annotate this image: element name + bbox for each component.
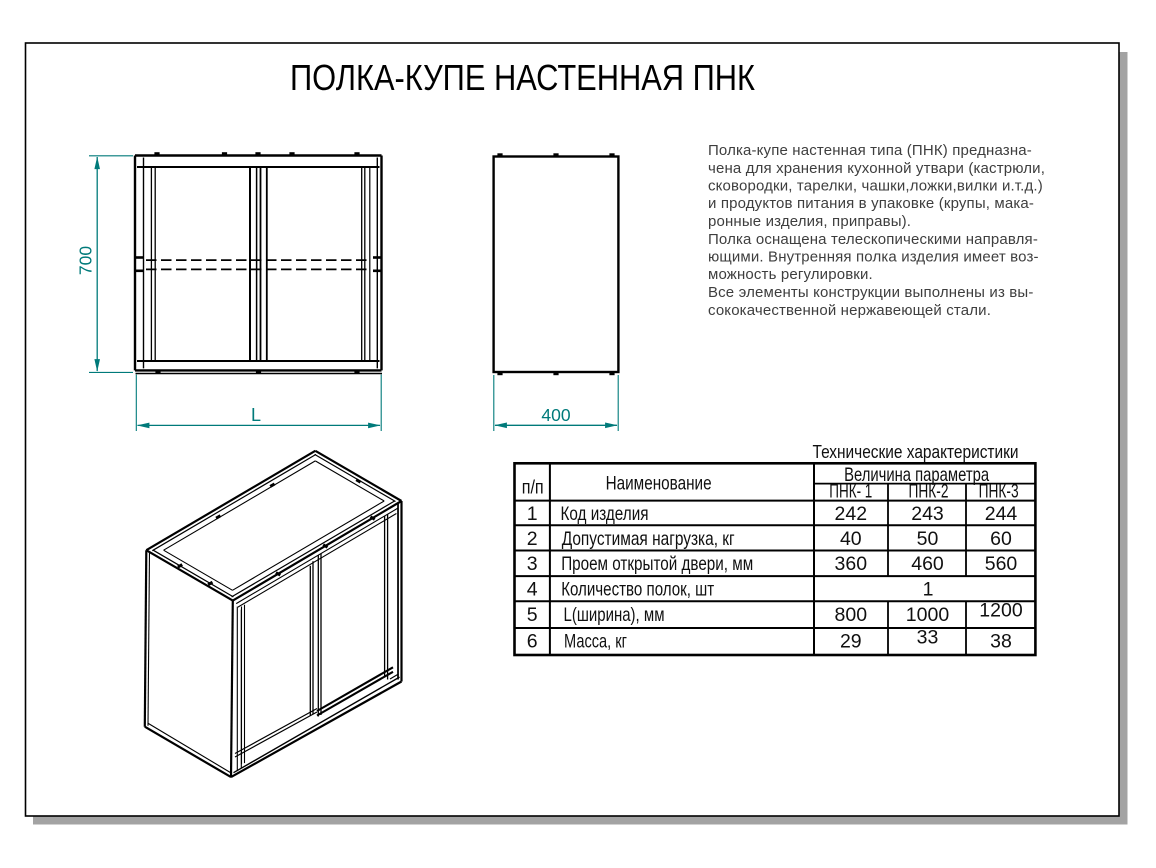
svg-text:чена для хранения кухонной утв: чена для хранения кухонной утвари (кастр… bbox=[708, 160, 1045, 177]
svg-text:4: 4 bbox=[527, 579, 538, 601]
svg-text:Допустимая нагрузка, кг: Допустимая нагрузка, кг bbox=[562, 528, 735, 550]
svg-text:60: 60 bbox=[990, 528, 1012, 550]
svg-text:и продуктов питания в упаковке: и продуктов питания в упаковке (крупы, м… bbox=[708, 195, 1034, 212]
svg-text:700: 700 bbox=[75, 246, 95, 275]
svg-text:Полка-купе настенная типа (ПНК: Полка-купе настенная типа (ПНК) предназн… bbox=[708, 142, 1032, 159]
svg-text:Код изделия: Код изделия bbox=[561, 503, 649, 525]
svg-text:3: 3 bbox=[527, 553, 538, 575]
svg-text:сковородки, тарелки, чашки,лож: сковородки, тарелки, чашки,ложки,вилки и… bbox=[708, 178, 1043, 195]
svg-text:6: 6 bbox=[527, 631, 538, 653]
svg-text:1200: 1200 bbox=[979, 600, 1023, 622]
svg-text:ПОЛКА-КУПЕ НАСТЕННАЯ ПНК: ПОЛКА-КУПЕ НАСТЕННАЯ ПНК bbox=[290, 57, 756, 98]
svg-text:можность регулировки.: можность регулировки. bbox=[708, 266, 873, 283]
svg-text:1000: 1000 bbox=[906, 604, 950, 626]
svg-text:п/п: п/п bbox=[522, 477, 544, 499]
svg-text:1: 1 bbox=[527, 503, 538, 525]
svg-text:400: 400 bbox=[541, 405, 570, 425]
svg-text:Проем открытой двери, мм: Проем открытой двери, мм bbox=[561, 553, 753, 575]
svg-text:Наименование: Наименование bbox=[606, 473, 712, 495]
svg-text:ПНК- 1: ПНК- 1 bbox=[829, 481, 872, 503]
svg-text:ПНК-2: ПНК-2 bbox=[909, 481, 949, 503]
svg-text:40: 40 bbox=[840, 528, 862, 550]
svg-text:Количество полок, шт: Количество полок, шт bbox=[561, 579, 714, 601]
svg-text:ющими. Внутренняя полка издели: ющими. Внутренняя полка изделия имеет во… bbox=[708, 249, 1039, 266]
svg-text:L: L bbox=[251, 405, 261, 425]
svg-text:сококачественной нержавеющей с: сококачественной нержавеющей стали. bbox=[708, 302, 991, 319]
svg-text:2: 2 bbox=[527, 528, 538, 550]
svg-text:Масса, кг: Масса, кг bbox=[564, 631, 627, 653]
svg-text:800: 800 bbox=[835, 604, 868, 626]
svg-text:33: 33 bbox=[917, 627, 939, 649]
svg-text:L(ширина), мм: L(ширина), мм bbox=[564, 604, 665, 626]
svg-text:Все элементы конструкции выпол: Все элементы конструкции выполнены из вы… bbox=[708, 284, 1034, 301]
svg-text:243: 243 bbox=[911, 503, 944, 525]
svg-text:360: 360 bbox=[835, 553, 868, 575]
svg-text:ПНК-3: ПНК-3 bbox=[979, 481, 1019, 503]
svg-text:Полка оснащена телескопическим: Полка оснащена телескопическими направля… bbox=[708, 231, 1038, 248]
svg-text:460: 460 bbox=[911, 553, 944, 575]
svg-text:5: 5 bbox=[527, 604, 538, 626]
svg-text:560: 560 bbox=[985, 553, 1018, 575]
svg-text:244: 244 bbox=[985, 503, 1018, 525]
svg-text:29: 29 bbox=[840, 631, 862, 653]
svg-text:242: 242 bbox=[835, 503, 868, 525]
svg-text:50: 50 bbox=[917, 528, 939, 550]
svg-text:ронные изделия, приправы).: ронные изделия, приправы). bbox=[708, 213, 911, 230]
svg-text:Технические характеристики: Технические характеристики bbox=[813, 441, 1019, 462]
svg-text:1: 1 bbox=[923, 579, 934, 601]
svg-text:38: 38 bbox=[990, 631, 1012, 653]
